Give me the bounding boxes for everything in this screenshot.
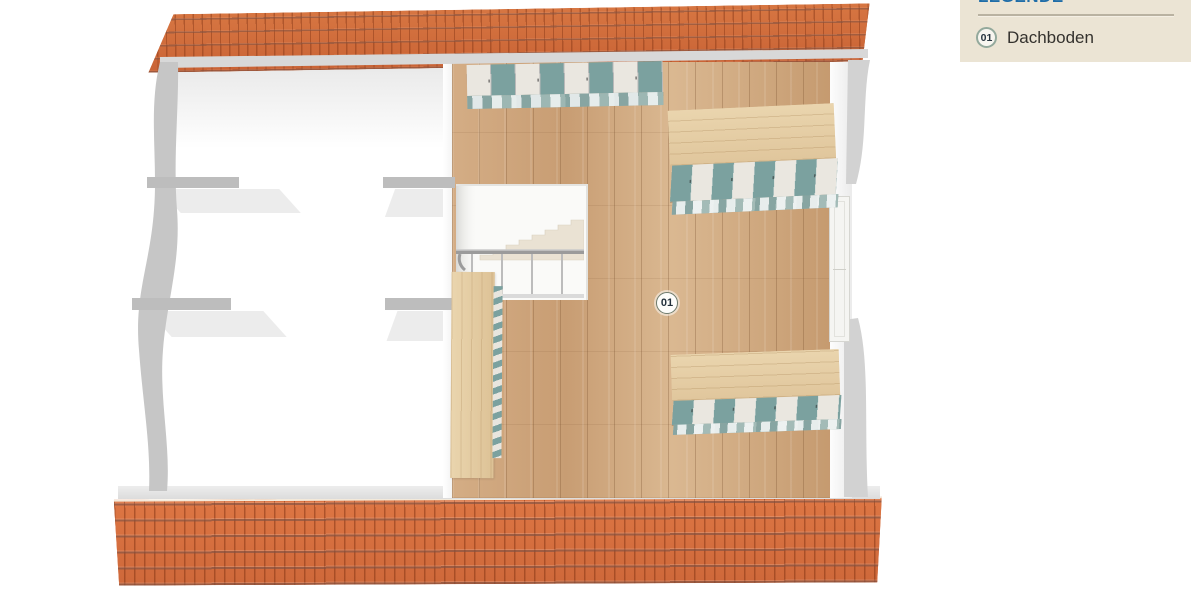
wardrobe-right-lower — [671, 349, 842, 435]
room-marker-number: 01 — [661, 297, 673, 309]
wardrobe-left — [450, 272, 501, 478]
legend-item-dachboden: 01 Dachboden — [976, 27, 1094, 48]
wardrobe-top-surface — [668, 103, 836, 165]
wardrobe-top-surface — [671, 349, 841, 401]
floorplan-canvas: 01 LEGENDE 01 Dachboden — [0, 0, 1200, 600]
legend-panel: LEGENDE 01 Dachboden — [960, 0, 1191, 62]
legend-divider — [978, 14, 1174, 17]
legend-item-label: Dachboden — [1007, 28, 1094, 48]
attic-shadow — [172, 66, 452, 176]
legend-item-badge: 01 — [976, 27, 997, 48]
roof-strip-bottom — [114, 496, 882, 585]
wardrobe-top-surface — [450, 272, 494, 478]
wall-shadow — [159, 189, 301, 213]
wardrobe-doors — [492, 286, 502, 458]
room-marker-badge: 01 — [656, 292, 678, 314]
legend-title: LEGENDE — [978, 0, 1064, 7]
window-sash — [833, 269, 846, 270]
right-wall-window — [829, 196, 850, 342]
legend-item-number: 01 — [981, 32, 993, 44]
wardrobe-doors — [467, 61, 664, 96]
wardrobe-right-upper — [668, 103, 839, 214]
wall-shadow — [148, 311, 286, 337]
wardrobe-top-row — [467, 61, 664, 109]
